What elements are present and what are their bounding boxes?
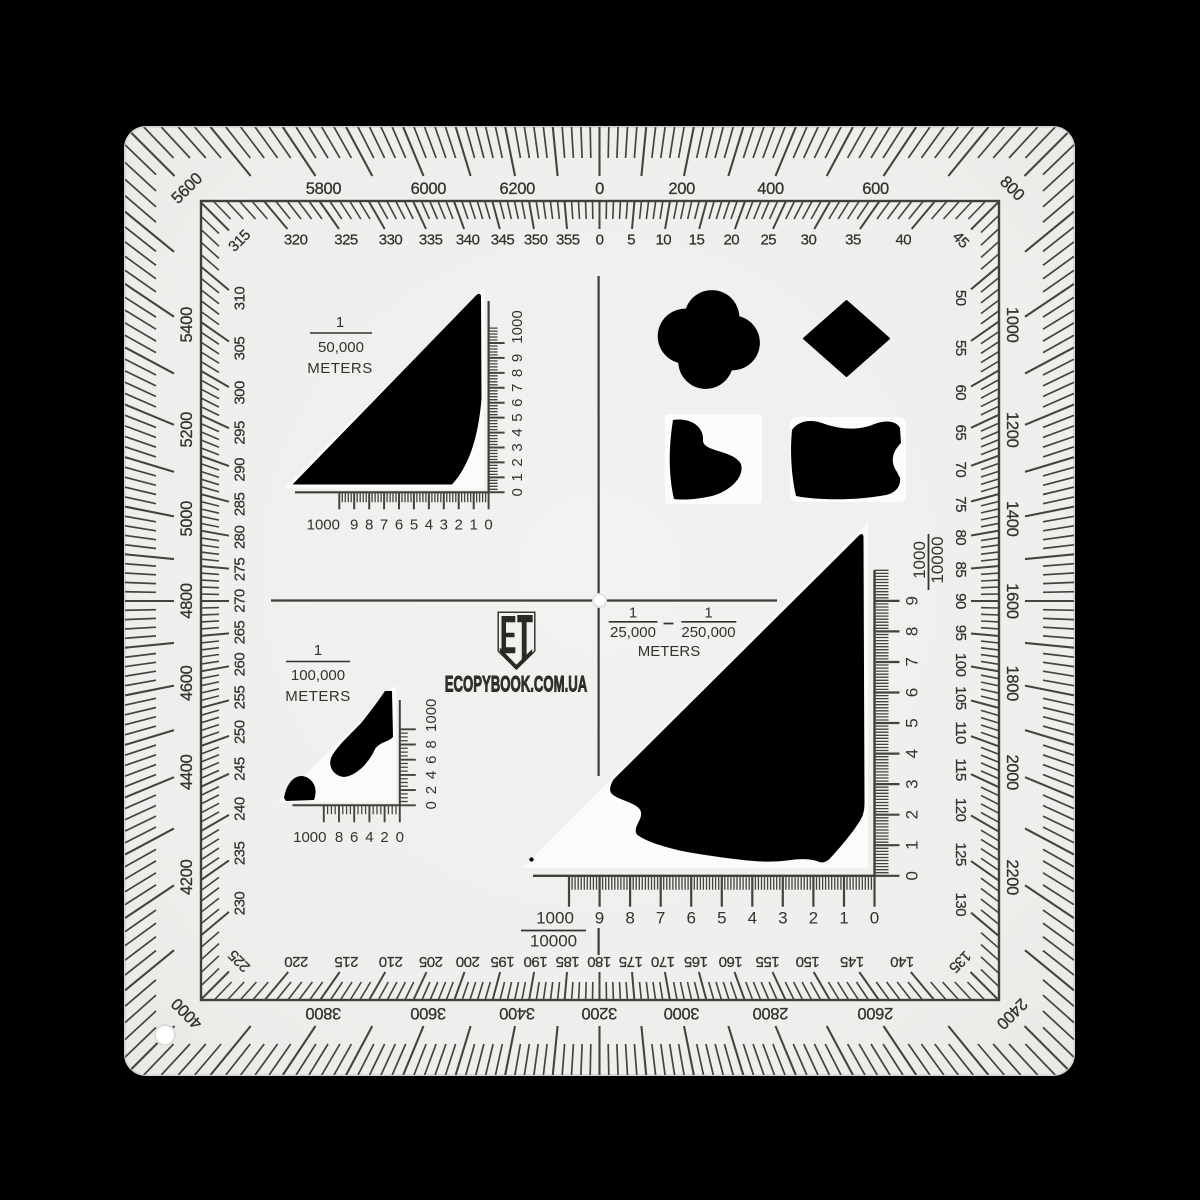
svg-text:80: 80 — [952, 529, 969, 545]
svg-text:30: 30 — [801, 231, 817, 248]
svg-text:5200: 5200 — [178, 412, 196, 448]
svg-text:4: 4 — [902, 749, 921, 758]
svg-text:5: 5 — [627, 231, 635, 248]
svg-text:170: 170 — [651, 953, 675, 970]
svg-text:5800: 5800 — [306, 180, 342, 198]
svg-text:5: 5 — [410, 517, 418, 534]
svg-text:5400: 5400 — [178, 307, 196, 343]
svg-text:6000: 6000 — [411, 180, 447, 198]
svg-text:6: 6 — [902, 688, 921, 697]
svg-text:METERS: METERS — [307, 360, 373, 377]
svg-text:0: 0 — [396, 829, 404, 846]
svg-text:50: 50 — [952, 290, 969, 306]
svg-text:40: 40 — [895, 231, 911, 248]
svg-text:9: 9 — [509, 354, 526, 362]
svg-text:0: 0 — [902, 871, 921, 880]
svg-text:8: 8 — [902, 627, 921, 636]
svg-text:8: 8 — [625, 909, 634, 928]
svg-text:110: 110 — [952, 721, 969, 744]
svg-text:145: 145 — [840, 953, 864, 970]
svg-text:1: 1 — [314, 642, 322, 659]
svg-text:35: 35 — [845, 231, 861, 248]
svg-text:200: 200 — [456, 953, 480, 970]
svg-text:7: 7 — [380, 517, 388, 534]
svg-text:100,000: 100,000 — [291, 667, 345, 684]
svg-text:1: 1 — [704, 605, 712, 622]
svg-text:220: 220 — [285, 953, 309, 970]
svg-text:330: 330 — [379, 231, 403, 248]
svg-text:5: 5 — [509, 413, 526, 421]
svg-text:0: 0 — [870, 909, 879, 928]
svg-text:5000: 5000 — [178, 501, 196, 537]
svg-text:6: 6 — [350, 829, 358, 846]
svg-text:25,000: 25,000 — [610, 624, 656, 641]
svg-text:305: 305 — [231, 337, 248, 361]
svg-text:3600: 3600 — [411, 1004, 447, 1022]
svg-text:105: 105 — [952, 686, 969, 710]
svg-text:3: 3 — [902, 779, 921, 788]
svg-text:4800: 4800 — [178, 583, 196, 619]
svg-text:75: 75 — [952, 496, 969, 512]
svg-text:600: 600 — [862, 180, 889, 198]
svg-text:8: 8 — [365, 517, 373, 534]
svg-text:260: 260 — [231, 653, 248, 677]
svg-text:285: 285 — [231, 492, 248, 516]
svg-text:2: 2 — [455, 517, 463, 534]
svg-text:8: 8 — [335, 829, 343, 846]
svg-text:295: 295 — [231, 421, 248, 445]
svg-text:1200: 1200 — [1003, 412, 1021, 448]
svg-text:280: 280 — [231, 525, 248, 549]
svg-text:10000: 10000 — [928, 536, 947, 583]
svg-text:140: 140 — [890, 953, 914, 970]
svg-text:ECOPYBOOK.COM.UA: ECOPYBOOK.COM.UA — [445, 671, 588, 697]
svg-text:25: 25 — [760, 231, 776, 248]
svg-text:195: 195 — [491, 953, 515, 970]
svg-text:265: 265 — [231, 621, 248, 645]
svg-text:65: 65 — [952, 425, 969, 441]
svg-text:4600: 4600 — [178, 665, 196, 701]
svg-text:115: 115 — [952, 758, 969, 781]
svg-text:1: 1 — [470, 517, 478, 534]
svg-text:1: 1 — [902, 840, 921, 849]
svg-text:3200: 3200 — [582, 1004, 618, 1022]
svg-text:1800: 1800 — [1003, 666, 1021, 702]
svg-text:1000: 1000 — [293, 829, 326, 846]
svg-text:270: 270 — [231, 589, 248, 613]
svg-text:335: 335 — [419, 231, 443, 248]
svg-text:6: 6 — [423, 756, 440, 764]
svg-text:1000: 1000 — [536, 909, 574, 928]
svg-text:10: 10 — [655, 231, 671, 248]
svg-text:150: 150 — [796, 953, 820, 970]
svg-text:230: 230 — [231, 892, 248, 916]
svg-text:0: 0 — [423, 801, 440, 809]
svg-text:50,000: 50,000 — [318, 339, 364, 356]
svg-text:7: 7 — [902, 657, 921, 666]
svg-text:5: 5 — [717, 909, 726, 928]
svg-text:2: 2 — [380, 829, 388, 846]
svg-text:2: 2 — [423, 786, 440, 794]
svg-text:355: 355 — [556, 231, 580, 248]
svg-text:6: 6 — [509, 399, 526, 407]
svg-text:320: 320 — [284, 231, 308, 248]
svg-text:155: 155 — [756, 953, 780, 970]
svg-text:4: 4 — [748, 909, 757, 928]
svg-text:325: 325 — [334, 231, 358, 248]
svg-text:9: 9 — [902, 596, 921, 605]
svg-text:255: 255 — [231, 686, 248, 710]
svg-text:345: 345 — [491, 231, 515, 248]
svg-text:7: 7 — [656, 909, 665, 928]
svg-text:1000: 1000 — [1003, 307, 1021, 343]
svg-text:400: 400 — [757, 180, 784, 198]
svg-text:90: 90 — [952, 593, 969, 609]
svg-text:275: 275 — [231, 558, 248, 582]
svg-text:0: 0 — [509, 488, 526, 496]
svg-text:240: 240 — [231, 797, 248, 821]
svg-text:190: 190 — [524, 953, 548, 970]
svg-text:3800: 3800 — [306, 1004, 342, 1022]
svg-text:245: 245 — [231, 757, 248, 781]
svg-text:235: 235 — [231, 841, 248, 865]
svg-text:3400: 3400 — [499, 1004, 535, 1022]
svg-text:3: 3 — [440, 517, 448, 534]
svg-text:20: 20 — [723, 231, 739, 248]
svg-text:290: 290 — [231, 458, 248, 482]
svg-text:6200: 6200 — [500, 180, 536, 198]
svg-text:4: 4 — [425, 517, 433, 534]
svg-text:55: 55 — [952, 340, 969, 356]
svg-text:85: 85 — [952, 562, 969, 578]
svg-text:1: 1 — [839, 909, 848, 928]
svg-text:205: 205 — [419, 953, 443, 970]
svg-text:2000: 2000 — [1003, 755, 1021, 791]
svg-text:5: 5 — [902, 718, 921, 727]
svg-text:1000: 1000 — [509, 310, 526, 343]
svg-text:2: 2 — [509, 458, 526, 466]
svg-text:350: 350 — [524, 231, 548, 248]
svg-text:165: 165 — [684, 953, 708, 970]
svg-text:0: 0 — [595, 180, 604, 198]
svg-text:2: 2 — [902, 810, 921, 819]
svg-text:2200: 2200 — [1003, 860, 1021, 896]
svg-text:300: 300 — [231, 381, 248, 405]
svg-text:4: 4 — [509, 428, 526, 436]
svg-text:210: 210 — [379, 953, 403, 970]
svg-text:100: 100 — [952, 653, 969, 677]
svg-text:250: 250 — [231, 720, 248, 744]
svg-text:1600: 1600 — [1003, 583, 1021, 619]
svg-text:310: 310 — [231, 287, 248, 311]
svg-text:1: 1 — [509, 473, 526, 481]
svg-text:60: 60 — [952, 384, 969, 400]
svg-text:1: 1 — [336, 314, 344, 331]
svg-text:125: 125 — [952, 842, 969, 866]
svg-text:3: 3 — [509, 443, 526, 451]
svg-text:1400: 1400 — [1003, 501, 1021, 537]
svg-text:180: 180 — [588, 953, 612, 970]
svg-text:3000: 3000 — [664, 1004, 700, 1022]
svg-text:160: 160 — [719, 953, 743, 970]
svg-text:0: 0 — [484, 517, 492, 534]
svg-text:185: 185 — [556, 953, 580, 970]
svg-text:1000: 1000 — [910, 541, 929, 579]
svg-text:3: 3 — [778, 909, 787, 928]
svg-text:215: 215 — [335, 953, 359, 970]
svg-text:340: 340 — [456, 231, 480, 248]
svg-text:2800: 2800 — [753, 1004, 789, 1022]
svg-text:9: 9 — [350, 517, 358, 534]
svg-text:1000: 1000 — [307, 517, 340, 534]
svg-text:10000: 10000 — [530, 932, 577, 951]
svg-text:2600: 2600 — [858, 1004, 894, 1022]
svg-text:6: 6 — [686, 909, 695, 928]
svg-text:8: 8 — [509, 369, 526, 377]
svg-text:175: 175 — [619, 953, 643, 970]
svg-text:130: 130 — [952, 893, 969, 917]
svg-text:200: 200 — [668, 180, 695, 198]
svg-text:95: 95 — [952, 625, 969, 641]
svg-text:1000: 1000 — [423, 699, 440, 732]
svg-text:2: 2 — [809, 909, 818, 928]
svg-text:METERS: METERS — [638, 643, 701, 660]
svg-text:70: 70 — [952, 462, 969, 478]
svg-text:120: 120 — [952, 798, 969, 822]
svg-text:15: 15 — [689, 231, 705, 248]
svg-text:4400: 4400 — [178, 754, 196, 790]
svg-text:METERS: METERS — [285, 688, 351, 705]
svg-text:8: 8 — [423, 740, 440, 748]
svg-text:4: 4 — [423, 771, 440, 779]
svg-text:250,000: 250,000 — [681, 624, 735, 641]
svg-text:7: 7 — [509, 384, 526, 392]
svg-text:0: 0 — [596, 231, 604, 248]
svg-text:1: 1 — [629, 605, 637, 622]
svg-text:4: 4 — [365, 829, 373, 846]
svg-text:6: 6 — [395, 517, 403, 534]
svg-text:4200: 4200 — [178, 859, 196, 895]
svg-text:9: 9 — [595, 909, 604, 928]
